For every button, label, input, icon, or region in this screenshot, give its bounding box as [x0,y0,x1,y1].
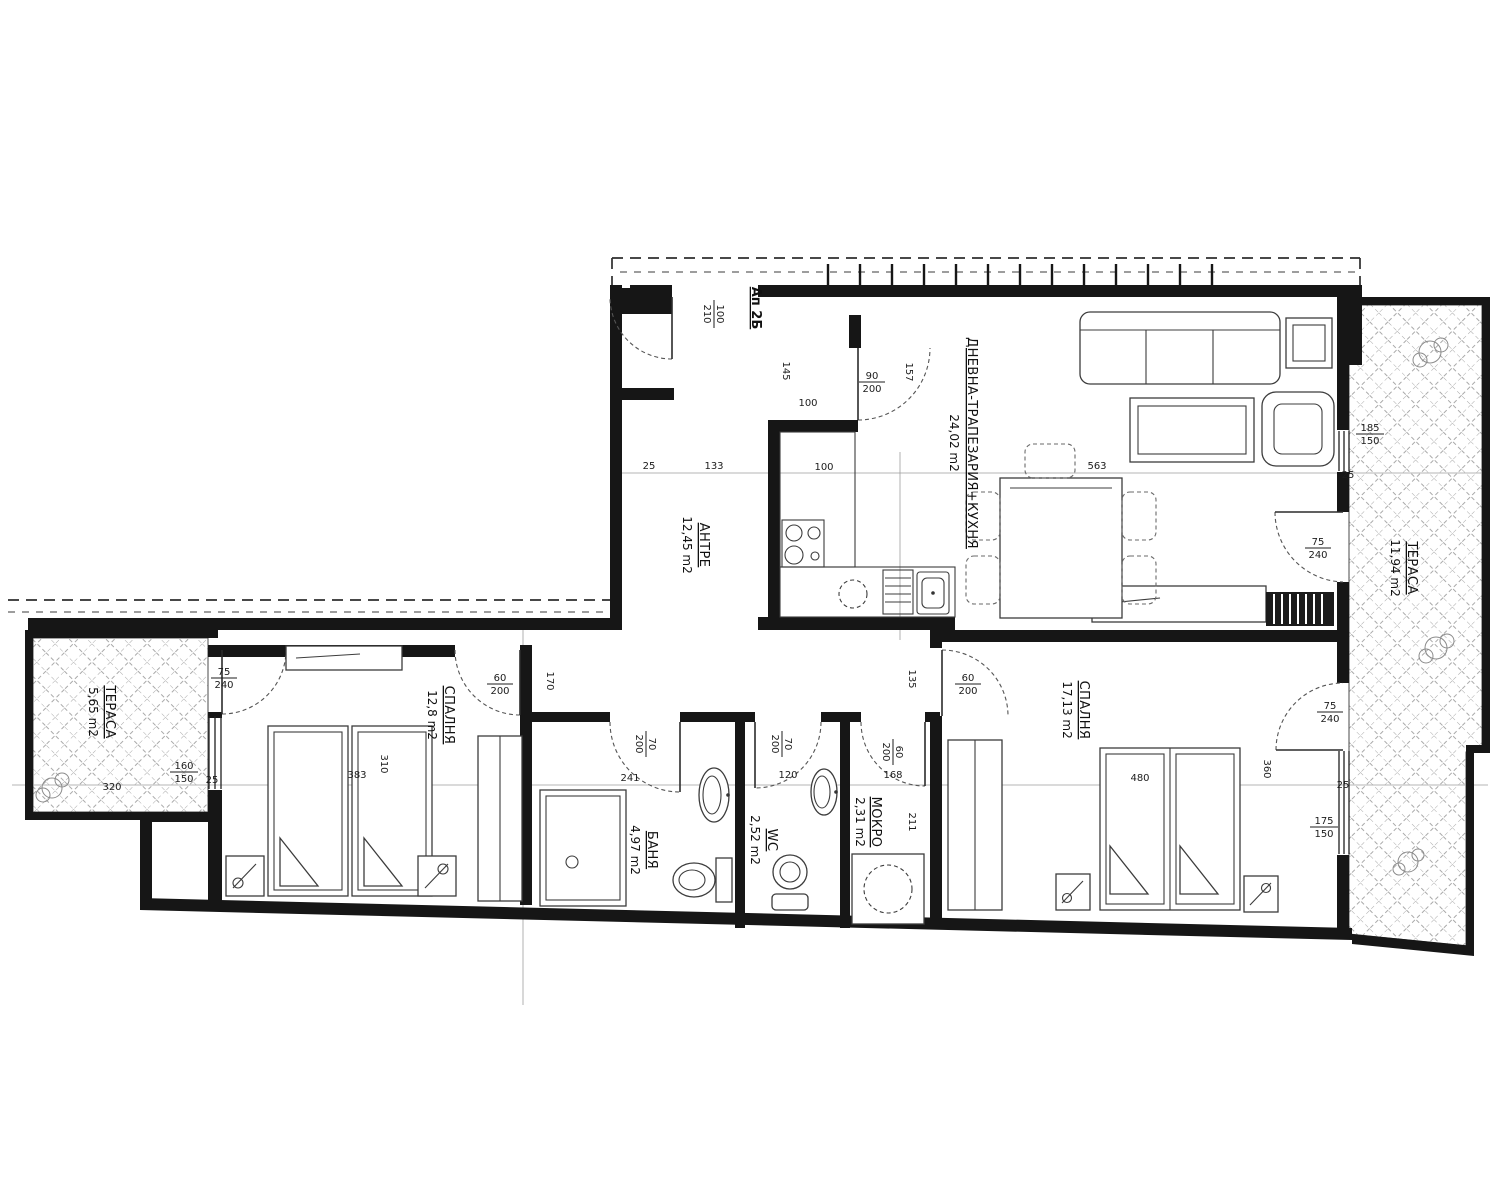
dim-25: 25 [1337,780,1350,791]
room-area: 2,52 m2 [748,815,762,865]
bedroom-left-door-size: 60 200 [487,673,513,697]
dim-den: 240 [214,680,233,691]
room-area: 12,8 m2 [425,690,439,740]
room-area: 4,97 m2 [628,825,642,875]
mokro-door-size: 60 200 [880,739,904,765]
room-area: 17,13 m2 [1060,681,1074,739]
room-area: 12,45 m2 [680,516,694,574]
dim-den: 200 [490,686,509,697]
dim-num: 175 [1314,816,1333,827]
room-label-bedroom-left: СПАЛНЯ 12,8 m2 [425,686,456,745]
dim-241: 241 [620,773,639,784]
dim-num: 75 [218,667,231,678]
dim-num: 185 [1360,423,1379,434]
dim-563: 563 [1087,461,1106,472]
wc-toilet [772,855,808,910]
dining-table [1000,478,1122,618]
nightstand-left-2 [418,856,456,896]
dim-480: 480 [1130,773,1149,784]
room-name: СПАЛНЯ [1076,681,1091,740]
window-bedroom-right [1339,751,1349,854]
room-label-bedroom-right: СПАЛНЯ 17,13 m2 [1060,681,1091,740]
dim-num: 60 [494,673,507,684]
dim-den: 210 [701,304,712,323]
bed-single-1 [268,726,348,896]
dish-rack [883,570,913,614]
kitchen-sink [917,572,949,614]
dim-157: 157 [903,362,914,381]
dim-den: 240 [1320,714,1339,725]
side-table [1286,318,1332,368]
bedroom-right-terrace-door-size: 75 240 [1317,701,1343,725]
bedroom-right-door [942,650,1008,716]
bedroom-left-door [455,650,520,715]
sofa [1080,312,1280,384]
room-name: СПАЛНЯ [441,686,456,745]
room-name: ТЕРАСА [1404,540,1419,594]
floor-plan: АНТРЕ 12,45 m2 ДНЕВНА-ТРАПЕЗАРИЯ+КУХНЯ 2… [0,0,1500,1200]
room-label-mokro: МОКРО 2,31 m2 [853,797,883,848]
room-area: 11,94 m2 [1388,539,1402,597]
bath-sink [699,768,730,822]
dim-383: 383 [347,770,366,781]
dim-320: 320 [102,782,121,793]
dim-num: 60 [893,746,904,759]
dim-num: 100 [714,304,725,323]
wardrobe-left [478,736,522,901]
kitchen-door-size: 90 200 [859,371,885,395]
apartment-label: Ап 2Б [748,287,763,330]
room-name: АНТРЕ [696,523,711,568]
room-label-wc: WC 2,52 m2 [748,815,779,865]
bed-double [1100,748,1240,910]
terrace-left-door-size: 75 240 [211,667,237,691]
room-name: МОКРО [868,797,883,848]
entrance-door-size: 100 210 [701,300,725,328]
dim-num: 70 [782,738,793,751]
washing-machine [852,854,924,924]
hall-console [286,646,402,670]
dim-den: 200 [862,384,881,395]
dim-num: 60 [962,673,975,684]
dim-den: 240 [1308,550,1327,561]
dim-100: 100 [798,398,817,409]
dim-den: 150 [174,774,193,785]
dim-25: 25 [206,775,219,786]
dim-num: 75 [1324,701,1337,712]
room-name: ДНЕВНА-ТРАПЕЗАРИЯ+КУХНЯ [964,337,979,549]
dim-den: 200 [958,686,977,697]
dim-25: 25 [643,461,656,472]
dim-100: 100 [814,462,833,473]
room-name: БАНЯ [644,831,659,869]
room-label-bath: БАНЯ 4,97 m2 [628,825,659,875]
nightstand-right-2 [1244,876,1278,912]
room-label-antre: АНТРЕ 12,45 m2 [680,516,711,574]
dim-num: 90 [866,371,879,382]
dim-168: 168 [883,770,902,781]
dim-120: 120 [778,770,797,781]
wc-door-size: 70 200 [769,731,793,757]
dim-25: 25 [1342,470,1355,481]
bedroom-right-door-size: 60 200 [955,673,981,697]
dim-den: 150 [1360,436,1379,447]
dim-den: 200 [633,734,644,753]
dim-num: 70 [646,738,657,751]
stove [782,520,824,567]
wardrobe-right [948,740,1002,910]
nightstand-right-1 [1056,874,1090,910]
room-label-living: ДНЕВНА-ТРАПЕЗАРИЯ+КУХНЯ 24,02 m2 [947,337,979,549]
dim-den: 200 [880,742,891,761]
dim-133: 133 [704,461,723,472]
dim-360: 360 [1261,759,1272,778]
dim-den: 200 [769,734,780,753]
wc-sink [811,769,838,815]
bath-toilet [673,858,732,902]
dim-170: 170 [544,671,555,690]
room-name: WC [764,829,779,852]
window-living [1339,431,1349,471]
room-name: ТЕРАСА [102,684,117,738]
room-area: 5,65 m2 [86,687,100,737]
room-area: 24,02 m2 [947,414,961,472]
dim-num: 160 [174,761,193,772]
dim-num: 75 [1312,537,1325,548]
kitchen-counter [780,432,955,617]
dim-135: 135 [906,669,917,688]
shower [540,790,626,906]
kitchen-round-sink [839,580,867,608]
bath-door-size: 70 200 [633,731,657,757]
armchair [1262,392,1334,466]
dim-den: 150 [1314,829,1333,840]
top-wall-ticks [828,264,1212,285]
living-terrace-door-size: 75 240 [1305,537,1331,561]
living-terrace-door [1275,512,1343,582]
dim-211: 211 [906,812,917,831]
dim-310: 310 [378,754,389,773]
radiator [1266,592,1334,626]
dim-145: 145 [780,361,791,380]
nightstand-left-1 [226,856,264,896]
room-area: 2,31 m2 [853,797,867,847]
window-bedroom-right-size: 175 150 [1310,816,1338,840]
coffee-table [1130,398,1254,462]
